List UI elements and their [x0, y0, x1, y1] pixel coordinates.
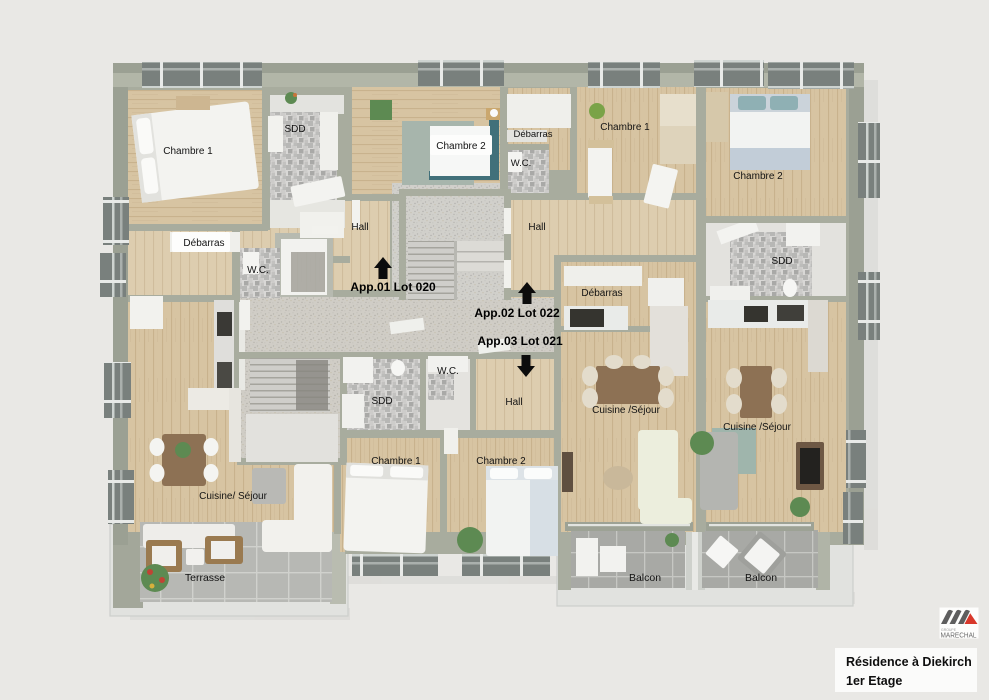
svg-text:Cuisine /Séjour: Cuisine /Séjour — [723, 422, 791, 433]
svg-text:Résidence à Diekirch: Résidence à Diekirch — [846, 655, 972, 669]
svg-text:Terrasse: Terrasse — [185, 572, 225, 584]
svg-text:Chambre 2: Chambre 2 — [476, 456, 526, 467]
svg-text:SDD: SDD — [771, 256, 792, 267]
svg-text:Cuisine /Séjour: Cuisine /Séjour — [592, 405, 660, 416]
svg-text:App.03 Lot 021: App.03 Lot 021 — [477, 334, 563, 348]
svg-text:Chambre 2: Chambre 2 — [436, 141, 486, 152]
svg-text:Chambre 1: Chambre 1 — [600, 122, 650, 133]
svg-text:Balcon: Balcon — [745, 572, 777, 584]
svg-text:Hall: Hall — [505, 397, 522, 408]
svg-text:W.C.: W.C. — [437, 366, 459, 377]
svg-text:Chambre 2: Chambre 2 — [733, 171, 783, 182]
svg-text:Débarras: Débarras — [513, 129, 552, 140]
svg-text:MARECHAL: MARECHAL — [941, 633, 977, 640]
svg-text:Chambre 1: Chambre 1 — [163, 146, 213, 157]
svg-text:Débarras: Débarras — [581, 288, 622, 299]
svg-text:W.C.: W.C. — [511, 158, 532, 169]
svg-text:Cuisine/ Séjour: Cuisine/ Séjour — [199, 491, 267, 502]
svg-text:SDD: SDD — [371, 396, 392, 407]
svg-text:App.02 Lot 022: App.02 Lot 022 — [474, 306, 560, 320]
svg-text:Hall: Hall — [528, 222, 545, 233]
svg-text:Balcon: Balcon — [629, 572, 661, 584]
svg-text:Hall: Hall — [351, 222, 368, 233]
svg-text:GROUPE: GROUPE — [941, 628, 957, 632]
svg-text:SDD: SDD — [284, 124, 305, 135]
svg-text:App.01 Lot 020: App.01 Lot 020 — [350, 280, 436, 294]
svg-text:Débarras: Débarras — [183, 238, 224, 249]
svg-text:W.C.: W.C. — [247, 265, 269, 276]
svg-text:1er Etage: 1er Etage — [846, 674, 902, 688]
svg-text:Chambre 1: Chambre 1 — [371, 456, 421, 467]
